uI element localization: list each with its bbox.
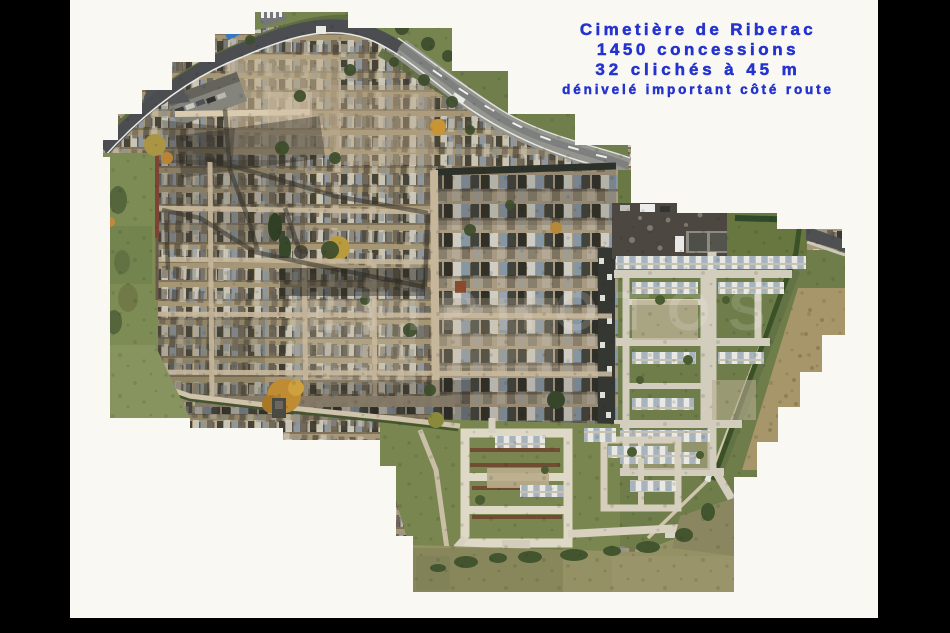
svg-text:32 clichés à 45 m: 32 clichés à 45 m [595, 60, 800, 79]
svg-text:1450 concessions: 1450 concessions [597, 40, 799, 59]
svg-text:dénivelé important côté route: dénivelé important côté route [562, 82, 834, 97]
svg-text:LTIPHOTOS: LTIPHOTOS [306, 279, 783, 342]
svg-text:Cimetière de Riberac: Cimetière de Riberac [580, 20, 816, 39]
